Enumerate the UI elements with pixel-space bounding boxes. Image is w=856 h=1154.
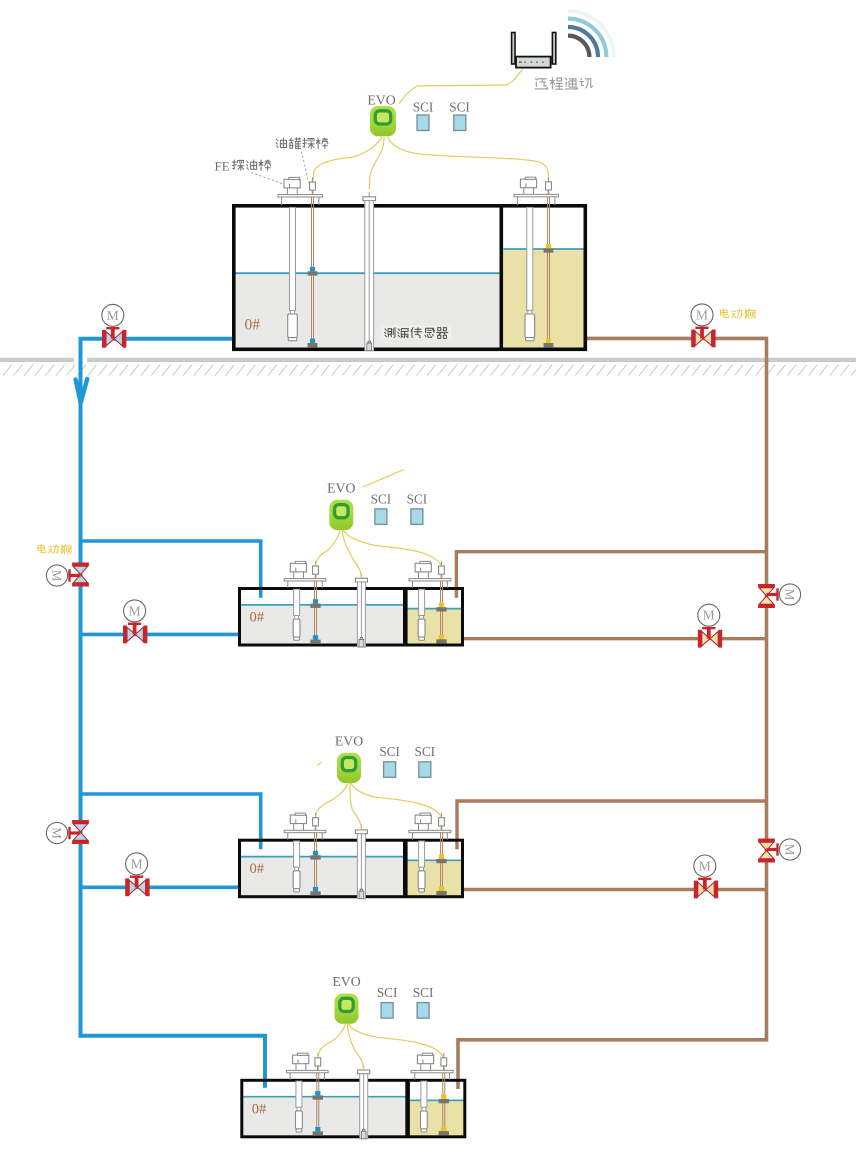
svg-text:SCI: SCI: [449, 100, 470, 115]
svg-text:M: M: [699, 859, 711, 874]
svg-text:M: M: [782, 589, 797, 601]
svg-text:SCI: SCI: [413, 985, 434, 1000]
svg-text:M: M: [107, 308, 119, 323]
svg-text:M: M: [703, 608, 715, 623]
svg-text:0#: 0#: [250, 861, 265, 877]
svg-text:M: M: [131, 856, 143, 871]
svg-text:M: M: [49, 827, 64, 839]
svg-text:FE: FE: [215, 159, 230, 174]
svg-text:M: M: [696, 307, 708, 322]
svg-text:SCI: SCI: [413, 100, 434, 115]
svg-text:EVO: EVO: [332, 974, 360, 989]
svg-text:SCI: SCI: [415, 744, 436, 759]
svg-text:SCI: SCI: [371, 491, 392, 506]
svg-text:SCI: SCI: [377, 985, 398, 1000]
svg-text:0#: 0#: [252, 1101, 266, 1117]
svg-text:0#: 0#: [250, 610, 265, 626]
svg-text:M: M: [782, 844, 797, 856]
svg-text:0#: 0#: [245, 317, 261, 334]
svg-text:EVO: EVO: [367, 93, 395, 108]
svg-text:EVO: EVO: [335, 733, 363, 748]
svg-text:EVO: EVO: [327, 481, 355, 496]
svg-text:SCI: SCI: [379, 744, 400, 759]
svg-text:M: M: [49, 570, 64, 582]
svg-text:M: M: [129, 603, 141, 618]
svg-text:SCI: SCI: [407, 491, 428, 506]
